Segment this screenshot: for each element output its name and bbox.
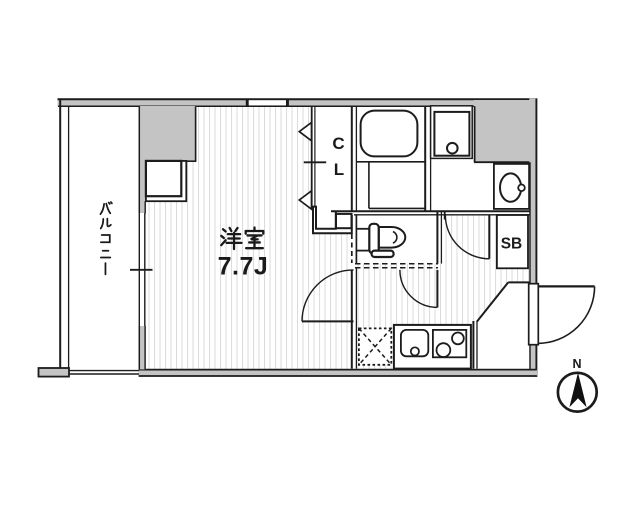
svg-text:7.7J: 7.7J [218, 253, 269, 281]
svg-text:N: N [572, 357, 581, 371]
svg-text:SB: SB [501, 236, 523, 253]
svg-text:C: C [332, 134, 344, 153]
svg-text:L: L [334, 160, 344, 179]
